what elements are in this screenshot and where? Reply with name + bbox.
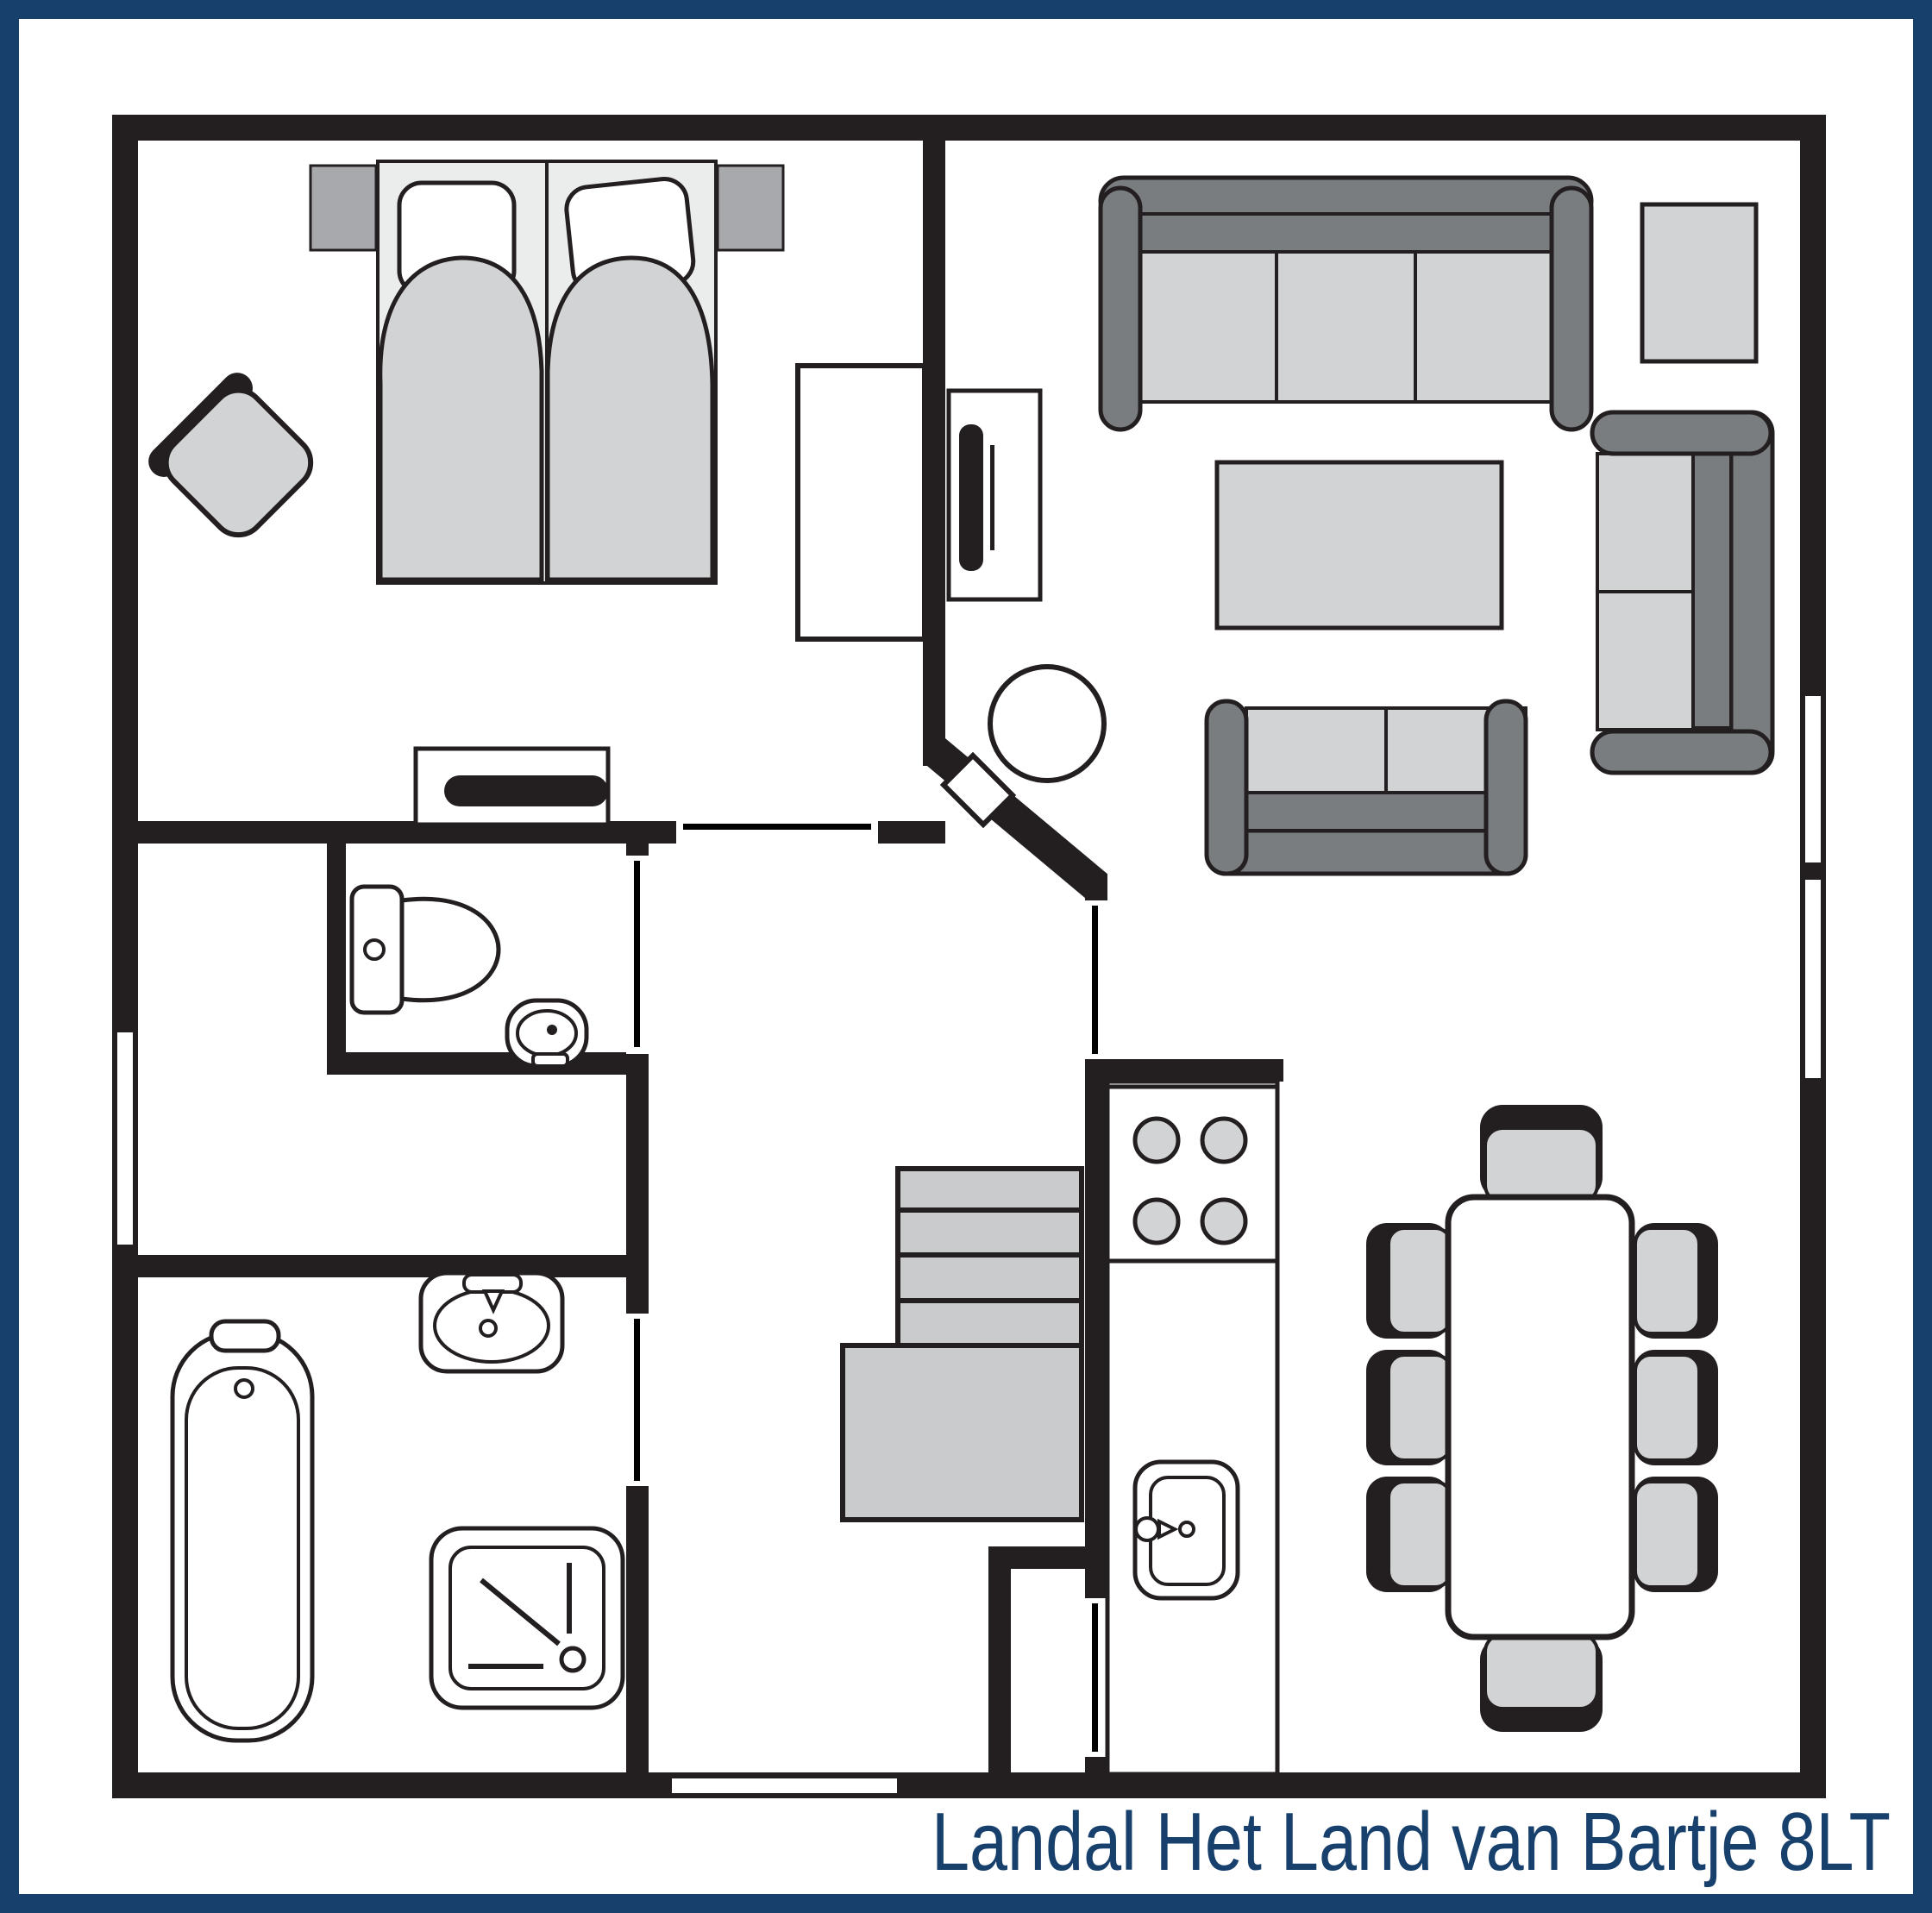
drain-icon [235, 1380, 253, 1397]
door-leaf-icon [634, 1319, 640, 1481]
dining-chair-right-icon [1634, 1477, 1718, 1592]
floorplan-canvas: Landal Het Land van Bartje 8LT [0, 0, 1932, 1913]
wall-exterior-bottom [112, 1772, 1826, 1798]
stairs-landing [843, 1345, 1082, 1520]
sofa-3-seat-icon [1101, 178, 1591, 430]
dresser-icon [416, 749, 608, 825]
living-room-door [1085, 900, 1107, 1059]
dining-chair-right-icon [1634, 1350, 1718, 1465]
wall-entry-left [988, 1546, 1011, 1798]
bedroom-door [676, 821, 878, 844]
sofa-cushion [1597, 592, 1693, 730]
sofa-armrest [1592, 412, 1771, 454]
floorplan-page: Landal Het Land van Bartje 8LT [0, 0, 1932, 1913]
sofa-2-seat-vertical-icon [1592, 412, 1772, 773]
sofa-armrest [1207, 701, 1246, 874]
window-right-upper-icon [1805, 696, 1821, 862]
dining-chair-left-icon [1366, 1477, 1451, 1592]
wardrobe-icon [798, 366, 925, 639]
kitchen [1107, 1082, 1277, 1774]
door-leaf-icon [1092, 1603, 1098, 1752]
plan-title: Landal Het Land van Bartje 8LT [931, 1796, 1891, 1888]
shower-drain [561, 1648, 584, 1671]
tap-icon [211, 1321, 279, 1351]
side-table-icon [1642, 204, 1756, 361]
window-left-icon [117, 1032, 133, 1245]
drain-icon [1180, 1522, 1194, 1536]
tv-icon [959, 424, 983, 571]
coffee-table-icon [1217, 462, 1502, 628]
wall-toilet-bottom [327, 1052, 649, 1075]
sofa-armrest [1486, 701, 1526, 874]
burner-icon [1135, 1119, 1178, 1162]
wall-toilet-left [327, 844, 346, 1073]
dining-chair-left-icon [1366, 1350, 1451, 1465]
dining-table-icon [1448, 1197, 1632, 1637]
wall-exterior-left [112, 115, 138, 1798]
dining-chair-left-icon [1366, 1223, 1451, 1339]
wall-exterior-top [112, 115, 1826, 141]
door-leaf-icon [683, 824, 871, 830]
bathtub-icon [172, 1321, 312, 1741]
sofa-cushion [1597, 454, 1693, 592]
corner-washbasin-icon [507, 1000, 586, 1066]
nightstand-right-icon [718, 166, 783, 250]
shower-icon [431, 1528, 623, 1708]
dining-chair-top-icon [1480, 1105, 1603, 1202]
basin-pedestal [533, 1054, 568, 1066]
sofa-2-seat-icon [1207, 701, 1526, 874]
tap-icon [1136, 1518, 1158, 1540]
dining-chair-bottom-icon [1480, 1634, 1603, 1732]
tv-cabinet-icon [949, 391, 1040, 599]
sofa-cushion [1246, 708, 1386, 793]
dresser-item [444, 775, 608, 806]
toilet-door [626, 856, 649, 1054]
sofa-cushion [1138, 252, 1276, 402]
tv-stand [990, 445, 994, 550]
double-bed-icon [378, 161, 716, 583]
kitchen-sink-icon [1135, 1462, 1238, 1598]
sofa-cushion [1415, 252, 1553, 402]
flush-button [365, 940, 384, 959]
sofa-armrest [1552, 188, 1591, 430]
window-right-lower-icon [1805, 880, 1821, 1078]
wall-bathroom-top [138, 1255, 649, 1277]
door-leaf-icon [1092, 906, 1098, 1054]
burner-icon [1135, 1200, 1178, 1243]
washbasin-icon [421, 1273, 562, 1371]
drain-icon [480, 1320, 496, 1336]
dining-chair-right-icon [1634, 1223, 1718, 1339]
bed-divider [545, 161, 549, 583]
drain-icon [547, 1025, 557, 1035]
closet-door [1085, 1598, 1107, 1757]
sofa-cushion [1276, 252, 1415, 402]
duvet-right [548, 258, 712, 580]
nightstand-left-icon [310, 166, 376, 250]
front-door-icon [672, 1778, 897, 1793]
hob-icon [1107, 1087, 1277, 1261]
duvet-left [380, 258, 542, 580]
burner-icon [1202, 1200, 1245, 1243]
wall-entry-top [988, 1546, 1107, 1569]
sofa-armrest [1592, 731, 1771, 773]
door-leaf-icon [634, 861, 640, 1047]
burner-icon [1202, 1119, 1245, 1162]
sofa-armrest [1101, 188, 1140, 430]
wall-kitchen-top [1085, 1059, 1283, 1082]
bathroom-door [626, 1314, 649, 1486]
